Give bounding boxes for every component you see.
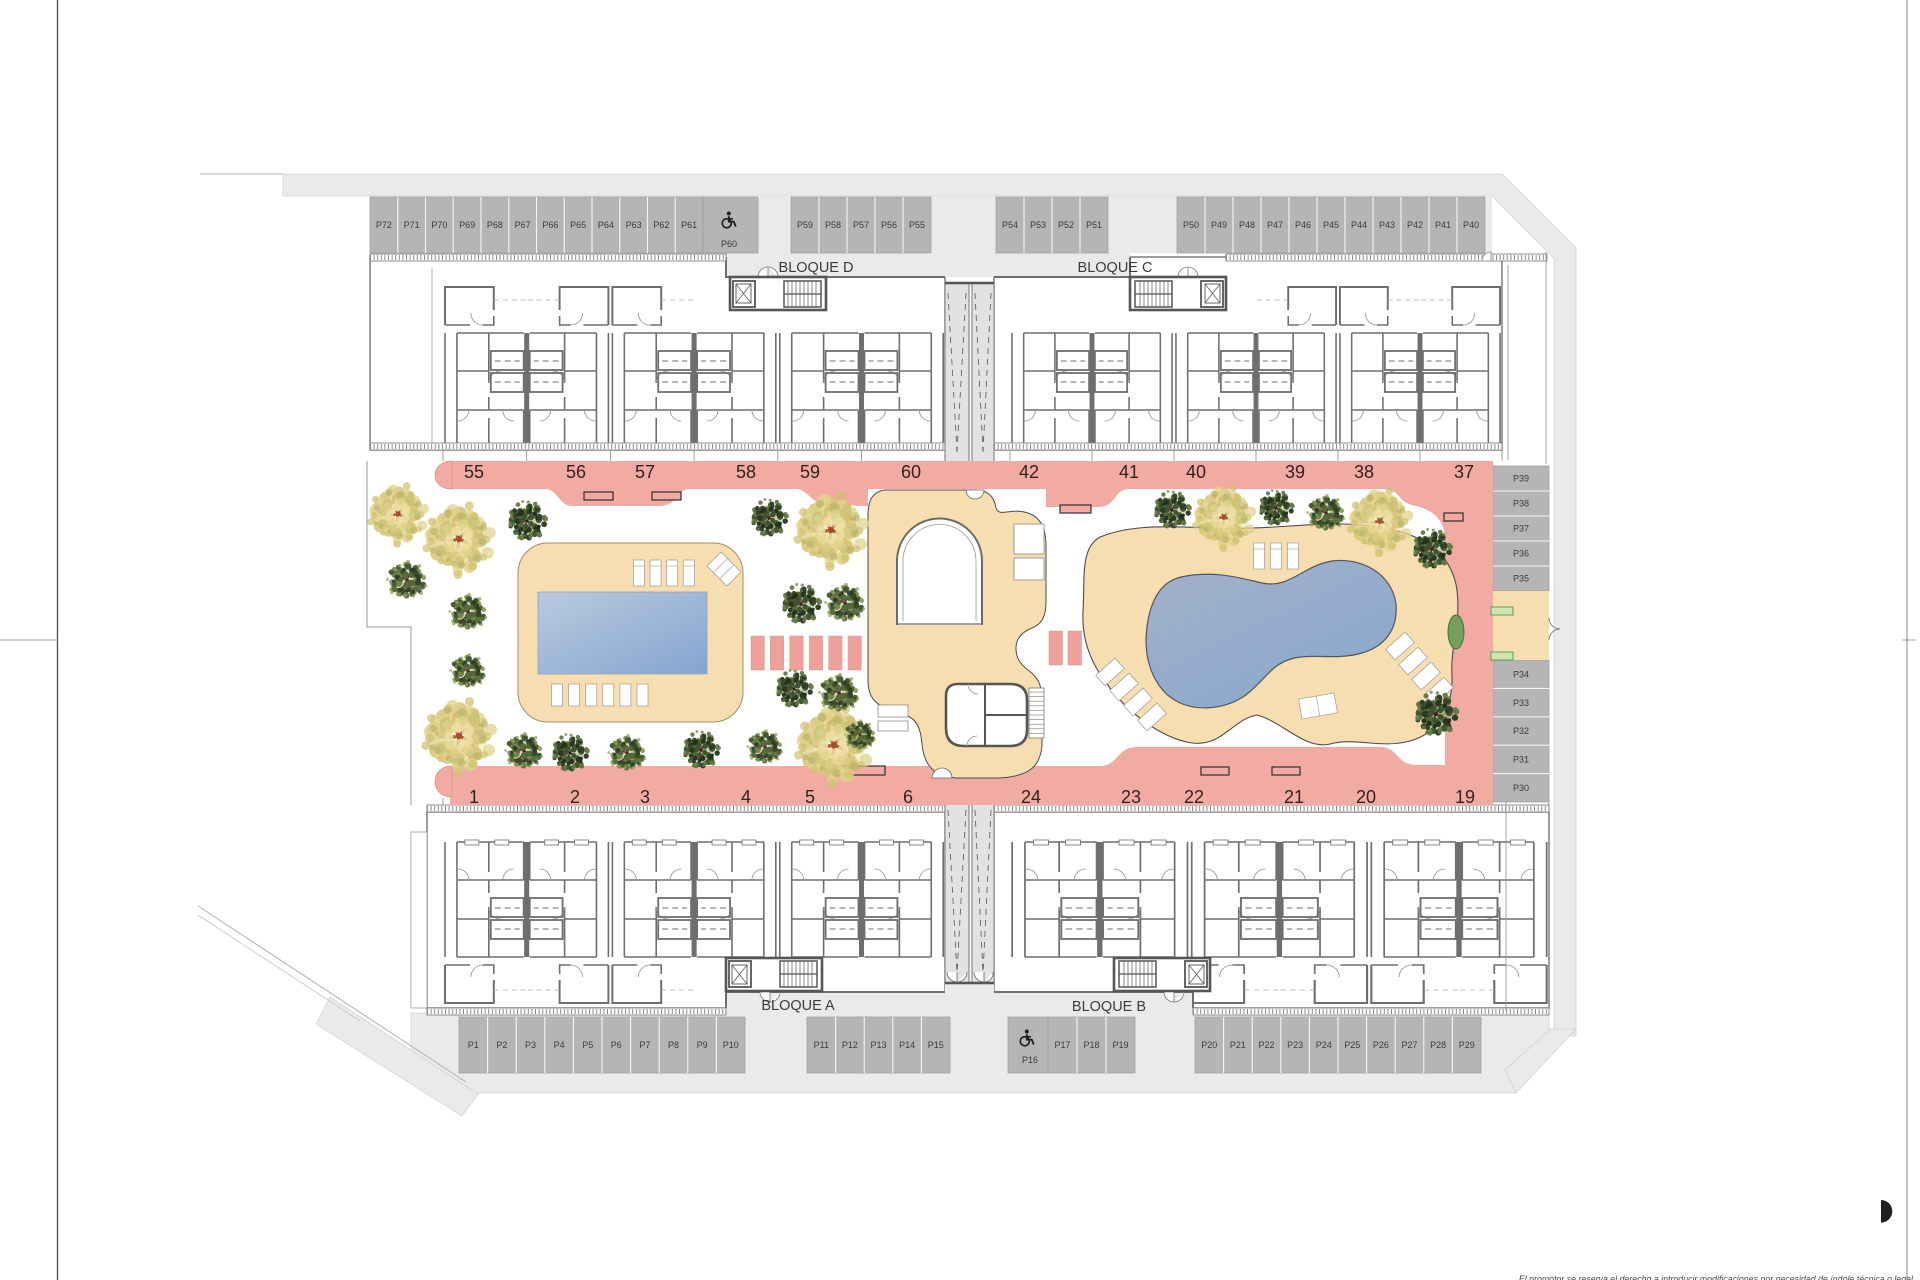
svg-text:P20: P20 (1201, 1040, 1217, 1050)
svg-text:P27: P27 (1401, 1040, 1417, 1050)
svg-text:P28: P28 (1430, 1040, 1446, 1050)
svg-text:2: 2 (570, 787, 580, 807)
svg-text:58: 58 (736, 462, 756, 482)
svg-text:P16: P16 (1022, 1055, 1038, 1065)
svg-text:P43: P43 (1379, 220, 1395, 230)
svg-text:59: 59 (800, 462, 820, 482)
svg-text:24: 24 (1021, 787, 1041, 807)
svg-text:P58: P58 (825, 220, 841, 230)
svg-text:P30: P30 (1513, 783, 1529, 793)
svg-text:P9: P9 (697, 1040, 708, 1050)
svg-text:P49: P49 (1211, 220, 1227, 230)
svg-text:56: 56 (566, 462, 586, 482)
svg-text:P12: P12 (842, 1040, 858, 1050)
svg-text:P44: P44 (1351, 220, 1367, 230)
svg-text:P7: P7 (639, 1040, 650, 1050)
svg-text:BLOQUE D: BLOQUE D (779, 260, 854, 276)
svg-text:P18: P18 (1083, 1040, 1099, 1050)
svg-text:P65: P65 (570, 220, 586, 230)
svg-text:P34: P34 (1513, 669, 1529, 679)
svg-text:60: 60 (901, 462, 921, 482)
svg-text:P22: P22 (1258, 1040, 1274, 1050)
svg-text:P48: P48 (1239, 220, 1255, 230)
svg-text:42: 42 (1019, 462, 1039, 482)
svg-text:40: 40 (1186, 462, 1206, 482)
svg-text:P15: P15 (928, 1040, 944, 1050)
svg-text:P60: P60 (721, 239, 737, 249)
svg-text:P21: P21 (1230, 1040, 1246, 1050)
svg-text:BLOQUE C: BLOQUE C (1078, 260, 1153, 276)
svg-text:P50: P50 (1183, 220, 1199, 230)
svg-text:P66: P66 (542, 220, 558, 230)
svg-text:P6: P6 (611, 1040, 622, 1050)
svg-text:P1: P1 (468, 1040, 479, 1050)
svg-text:5: 5 (805, 787, 815, 807)
svg-text:P71: P71 (404, 220, 420, 230)
svg-text:P62: P62 (653, 220, 669, 230)
svg-text:P13: P13 (870, 1040, 886, 1050)
svg-text:P25: P25 (1344, 1040, 1360, 1050)
svg-text:P2: P2 (496, 1040, 507, 1050)
svg-text:P36: P36 (1513, 549, 1529, 559)
svg-text:22: 22 (1184, 787, 1204, 807)
svg-text:38: 38 (1354, 462, 1374, 482)
svg-text:P23: P23 (1287, 1040, 1303, 1050)
svg-text:P61: P61 (681, 220, 697, 230)
svg-text:37: 37 (1454, 462, 1474, 482)
svg-text:23: 23 (1121, 787, 1141, 807)
svg-text:P55: P55 (909, 220, 925, 230)
svg-text:39: 39 (1285, 462, 1305, 482)
svg-text:P3: P3 (525, 1040, 536, 1050)
svg-text:P40: P40 (1463, 220, 1479, 230)
svg-text:P10: P10 (723, 1040, 739, 1050)
svg-text:P29: P29 (1459, 1040, 1475, 1050)
svg-text:P17: P17 (1054, 1040, 1070, 1050)
svg-text:P51: P51 (1086, 220, 1102, 230)
svg-text:P53: P53 (1030, 220, 1046, 230)
svg-text:P35: P35 (1513, 574, 1529, 584)
svg-text:P26: P26 (1373, 1040, 1389, 1050)
svg-text:P24: P24 (1316, 1040, 1332, 1050)
svg-text:El promotor se reserva el dere: El promotor se reserva el derecho a intr… (1519, 1274, 1914, 1280)
svg-text:P54: P54 (1002, 220, 1018, 230)
svg-text:P64: P64 (598, 220, 614, 230)
svg-text:P52: P52 (1058, 220, 1074, 230)
svg-text:4: 4 (741, 787, 751, 807)
svg-text:P68: P68 (487, 220, 503, 230)
svg-text:P32: P32 (1513, 726, 1529, 736)
svg-text:P56: P56 (881, 220, 897, 230)
svg-text:55: 55 (464, 462, 484, 482)
svg-text:3: 3 (640, 787, 650, 807)
svg-text:BLOQUE A: BLOQUE A (761, 998, 835, 1014)
svg-text:P67: P67 (515, 220, 531, 230)
svg-text:P59: P59 (797, 220, 813, 230)
svg-text:P4: P4 (554, 1040, 565, 1050)
svg-text:P69: P69 (459, 220, 475, 230)
svg-text:P5: P5 (582, 1040, 593, 1050)
svg-text:6: 6 (903, 787, 913, 807)
svg-text:P11: P11 (814, 1040, 829, 1050)
svg-text:P57: P57 (853, 220, 869, 230)
svg-text:1: 1 (469, 787, 479, 807)
svg-text:P46: P46 (1295, 220, 1311, 230)
svg-text:P70: P70 (431, 220, 447, 230)
svg-text:BLOQUE B: BLOQUE B (1072, 999, 1146, 1015)
svg-text:P39: P39 (1513, 474, 1529, 484)
svg-text:P31: P31 (1513, 755, 1529, 765)
svg-text:P37: P37 (1513, 524, 1529, 534)
svg-text:19: 19 (1455, 787, 1475, 807)
svg-text:P33: P33 (1513, 698, 1529, 708)
svg-text:P47: P47 (1267, 220, 1283, 230)
svg-text:P41: P41 (1435, 220, 1451, 230)
svg-text:P45: P45 (1323, 220, 1339, 230)
svg-text:P14: P14 (899, 1040, 915, 1050)
svg-text:P8: P8 (668, 1040, 679, 1050)
svg-text:P63: P63 (626, 220, 642, 230)
svg-text:P38: P38 (1513, 499, 1529, 509)
svg-text:21: 21 (1284, 787, 1304, 807)
svg-text:P72: P72 (376, 220, 392, 230)
svg-text:41: 41 (1119, 462, 1139, 482)
svg-text:P42: P42 (1407, 220, 1423, 230)
svg-text:P19: P19 (1112, 1040, 1128, 1050)
svg-text:57: 57 (635, 462, 655, 482)
svg-text:20: 20 (1356, 787, 1376, 807)
